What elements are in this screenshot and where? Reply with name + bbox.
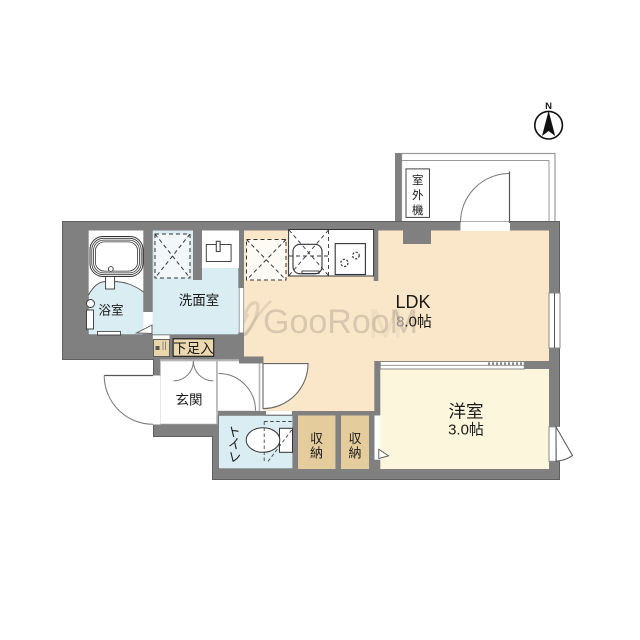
- svg-text:3.0帖: 3.0帖: [448, 422, 484, 439]
- svg-text:下足入: 下足入: [173, 341, 214, 356]
- svg-text:洗面室: 洗面室: [179, 292, 220, 308]
- svg-text:LDK: LDK: [395, 292, 430, 312]
- svg-text:浴室: 浴室: [98, 303, 123, 318]
- svg-text:収: 収: [310, 431, 323, 446]
- svg-text:機: 機: [412, 203, 424, 217]
- svg-text:収: 収: [348, 431, 361, 446]
- svg-text:室: 室: [412, 173, 424, 187]
- svg-text:洋室: 洋室: [449, 402, 484, 422]
- svg-text:8.0帖: 8.0帖: [396, 314, 432, 331]
- svg-text:N: N: [545, 101, 552, 112]
- svg-text:玄関: 玄関: [176, 392, 203, 408]
- svg-text:納: 納: [348, 446, 361, 461]
- svg-text:外: 外: [412, 189, 424, 202]
- svg-text:納: 納: [310, 446, 323, 461]
